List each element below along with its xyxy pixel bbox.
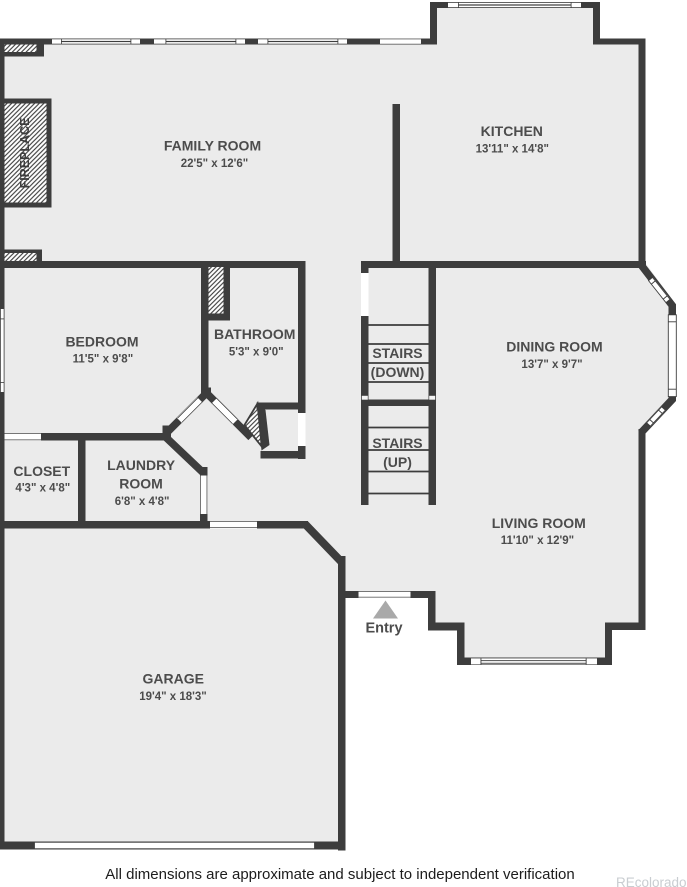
svg-text:(UP): (UP): [383, 454, 412, 470]
svg-text:STAIRS: STAIRS: [372, 435, 422, 451]
svg-text:BEDROOM: BEDROOM: [65, 334, 138, 350]
svg-text:KITCHEN: KITCHEN: [481, 123, 543, 139]
svg-text:BATHROOM: BATHROOM: [214, 326, 295, 342]
svg-text:Entry: Entry: [365, 621, 402, 637]
svg-text:11'5" x 9'8": 11'5" x 9'8": [73, 353, 134, 365]
svg-text:13'7" x 9'7": 13'7" x 9'7": [521, 359, 582, 371]
svg-text:13'11" x 14'8": 13'11" x 14'8": [476, 144, 549, 156]
svg-text:(DOWN): (DOWN): [371, 364, 425, 380]
svg-text:DINING ROOM: DINING ROOM: [506, 338, 602, 354]
svg-text:CLOSET: CLOSET: [13, 463, 70, 479]
svg-text:19'4" x 18'3": 19'4" x 18'3": [139, 691, 207, 703]
svg-text:FIREPLACE: FIREPLACE: [18, 118, 32, 189]
svg-text:ROOM: ROOM: [119, 475, 163, 491]
svg-text:22'5" x 12'6": 22'5" x 12'6": [181, 158, 249, 170]
svg-text:4'3" x 4'8": 4'3" x 4'8": [15, 483, 70, 495]
svg-text:STAIRS: STAIRS: [372, 345, 422, 361]
svg-text:All dimensions are approximate: All dimensions are approximate and subje…: [105, 866, 574, 883]
svg-text:FAMILY ROOM: FAMILY ROOM: [164, 138, 261, 154]
svg-text:LIVING ROOM: LIVING ROOM: [492, 515, 586, 531]
svg-text:GARAGE: GARAGE: [142, 671, 203, 687]
svg-text:REcolorado: REcolorado: [616, 875, 687, 887]
svg-text:11'10" x 12'9": 11'10" x 12'9": [501, 535, 574, 547]
svg-text:LAUNDRY: LAUNDRY: [107, 457, 176, 473]
svg-text:6'8" x 4'8": 6'8" x 4'8": [115, 496, 170, 508]
svg-text:5'3" x 9'0": 5'3" x 9'0": [229, 346, 284, 358]
